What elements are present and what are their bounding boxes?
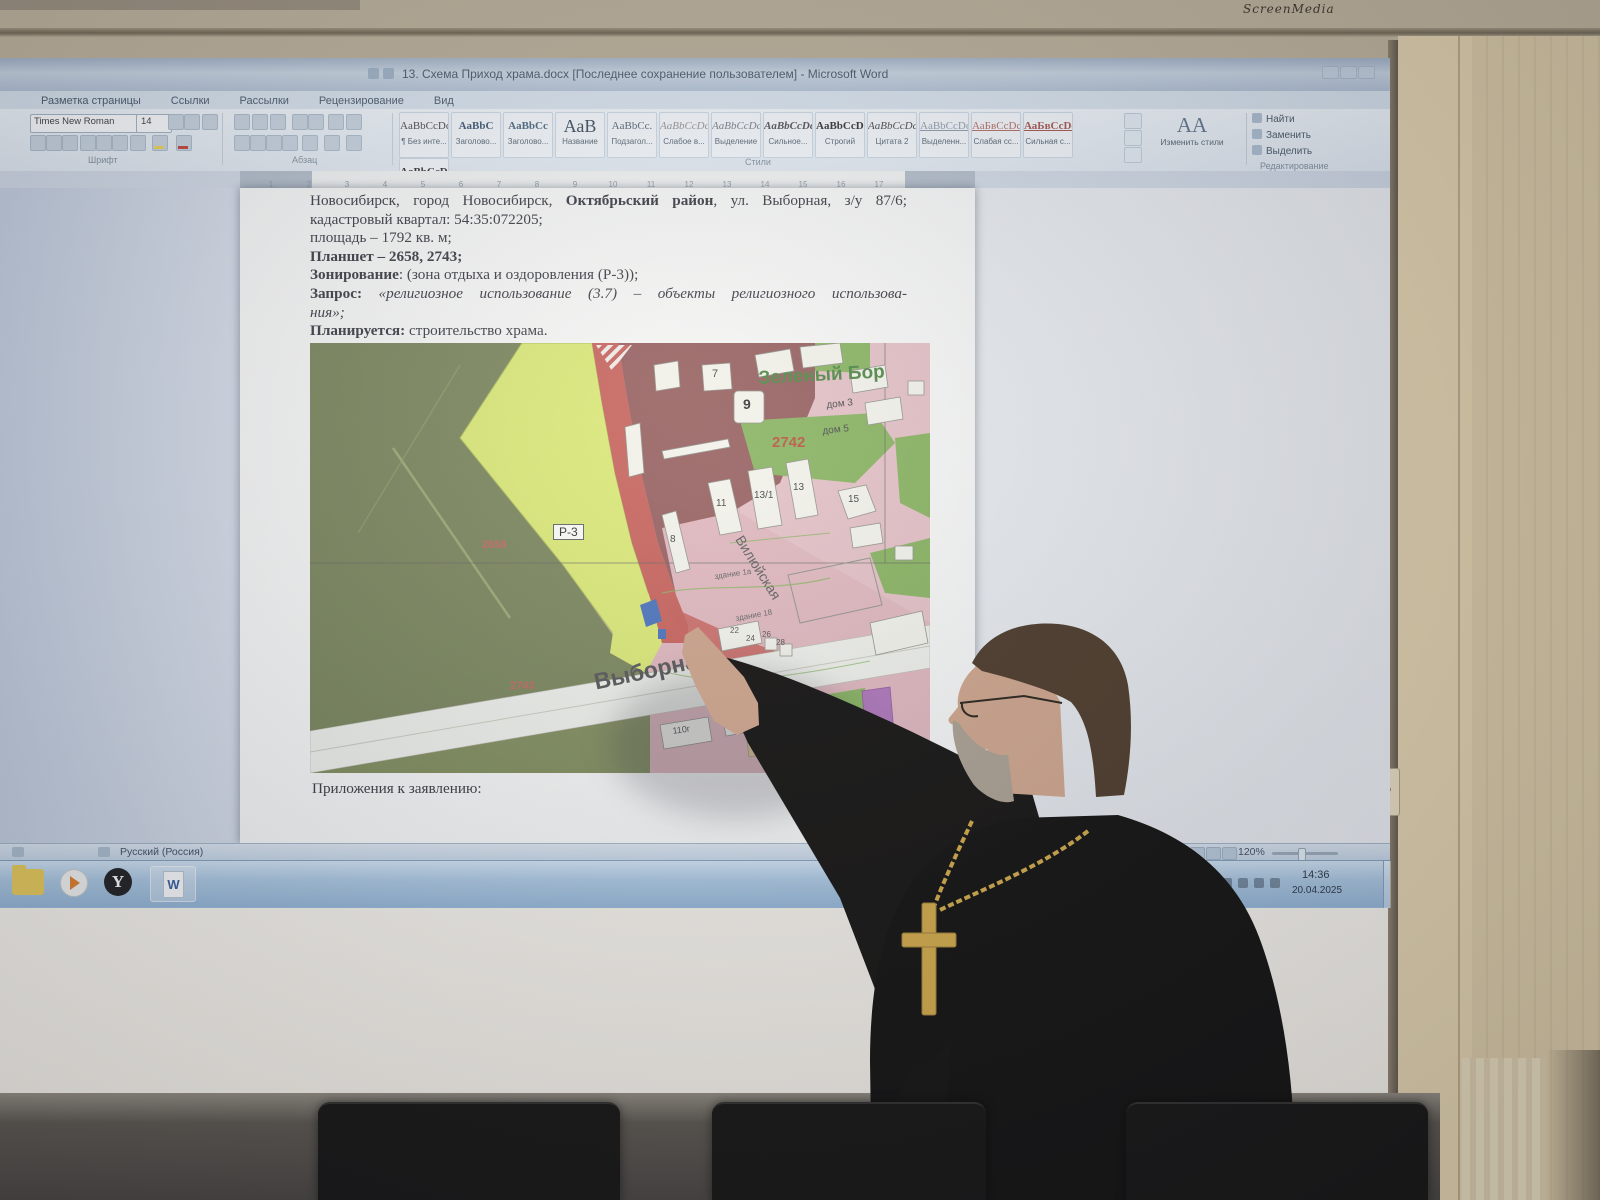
wood-trim	[1462, 1058, 1546, 1200]
corner-shadow	[1546, 1050, 1600, 1200]
style-chip[interactable]: АаБвСсDc Слабая сс...	[971, 112, 1021, 158]
select-label: Выделить	[1266, 146, 1312, 157]
style-label: ¶ Без инте...	[400, 137, 448, 146]
chair-back	[1126, 1102, 1428, 1200]
page-info-icon[interactable]	[12, 847, 24, 857]
map-label: 9	[743, 397, 751, 411]
style-sample: AaBbCcDc	[712, 113, 760, 137]
styles-scroll-down-icon[interactable]	[1124, 130, 1142, 146]
ribbon-tab[interactable]: Рецензирование	[304, 93, 419, 107]
highlight-color	[154, 146, 164, 149]
pilcrow-icon[interactable]	[346, 114, 362, 130]
doc-line: кадастровый квартал: 54:35:072205;	[310, 211, 907, 230]
style-label: Заголово...	[504, 137, 552, 146]
numbering-icon[interactable]	[252, 114, 268, 130]
word-titlebar: 13. Схема Приход храма.docx [Последнее с…	[0, 58, 1390, 91]
style-sample: AaBbCc	[504, 113, 552, 137]
styles-gallery: AaBbCcDc ¶ Без инте... AaBbC Заголово...…	[398, 112, 1120, 160]
editing-group: Найти Заменить Выделить Редактирование	[1252, 113, 1372, 171]
font-name-box[interactable]: Times New Roman	[30, 114, 138, 133]
style-chip[interactable]: АаВ Название	[555, 112, 605, 158]
doc-line: Планируется: строительство храма.	[310, 322, 907, 341]
change-styles-label: Изменить стили	[1146, 138, 1238, 147]
ribbon: Times New Roman 14 Шрифт	[0, 109, 1390, 172]
style-sample: AaBbCcDc	[400, 113, 448, 137]
paragraph-group-label: Абзац	[292, 155, 317, 165]
select-button[interactable]: Выделить	[1252, 145, 1372, 159]
font-color-icon[interactable]	[176, 135, 192, 151]
indent-decrease-icon[interactable]	[292, 114, 308, 130]
style-chip[interactable]: AaBbCcDc Выделение	[711, 112, 761, 158]
map-label: 2743	[510, 681, 534, 692]
superscript-icon[interactable]	[112, 135, 128, 151]
screen-brand-logo: ScreenMedia	[1243, 2, 1335, 16]
justify-icon[interactable]	[282, 135, 298, 151]
style-label: Сильное...	[764, 137, 812, 146]
align-center-icon[interactable]	[250, 135, 266, 151]
ribbon-tab[interactable]: Вид	[419, 93, 469, 107]
style-chip[interactable]: AaBbCc. Подзагол...	[607, 112, 657, 158]
font-size-box[interactable]: 14	[136, 114, 172, 133]
font-color	[178, 146, 188, 149]
priest-head	[949, 623, 1131, 802]
subscript-icon[interactable]	[96, 135, 112, 151]
style-sample: AaBbCcDc	[660, 113, 708, 137]
show-desktop-button[interactable]	[1383, 861, 1391, 908]
map-label: 13/1	[754, 491, 773, 501]
doc-line: Новосибирск, город Новосибирск, Октябрьс…	[310, 192, 907, 211]
style-sample: AaBbCcDc	[868, 113, 916, 137]
replace-button[interactable]: Заменить	[1252, 129, 1372, 143]
word-taskbar-button[interactable]: W	[150, 866, 196, 902]
style-label: Заголово...	[452, 137, 500, 146]
map-label: 8	[670, 535, 676, 545]
screen-top-bezel: ScreenMedia	[0, 0, 1600, 58]
group-divider	[222, 113, 223, 165]
indent-increase-icon[interactable]	[308, 114, 324, 130]
map-label: Р-3	[553, 524, 584, 540]
style-chip[interactable]: АаБвСсDc Сильная с...	[1023, 112, 1073, 158]
ribbon-tab[interactable]: Разметка страницы	[26, 93, 156, 107]
change-styles-button[interactable]: АА Изменить стили	[1146, 112, 1238, 170]
styles-scroll	[1124, 113, 1141, 164]
grow-font-icon[interactable]	[168, 114, 184, 130]
style-label: Название	[556, 137, 604, 146]
align-right-icon[interactable]	[266, 135, 282, 151]
undo-icon[interactable]	[383, 68, 394, 79]
style-chip[interactable]: AaBbCcDc Строгий	[815, 112, 865, 158]
styles-group-label: Стили	[745, 157, 771, 167]
doc-line: Планшет – 2658, 2743;	[310, 248, 907, 267]
ruler[interactable]: 1234567891011121314151617	[0, 171, 1390, 188]
bold-icon[interactable]	[30, 135, 46, 151]
chair-back	[318, 1102, 620, 1200]
map-label: 2742	[772, 435, 805, 450]
change-styles-icon: АА	[1146, 112, 1238, 138]
editing-group-label: Редактирование	[1260, 161, 1372, 171]
select-icon	[1252, 145, 1262, 155]
styles-more-icon[interactable]	[1124, 147, 1142, 163]
change-case-icon[interactable]	[130, 135, 146, 151]
style-sample: АаВ	[556, 113, 604, 137]
style-chip[interactable]: AaBbCcDc Выделенн...	[919, 112, 969, 158]
media-player-icon[interactable]	[60, 869, 88, 897]
font-group-label: Шрифт	[88, 155, 118, 165]
style-label: Цитата 2	[868, 137, 916, 146]
bullets-icon[interactable]	[234, 114, 250, 130]
style-sample: AaBbC	[452, 113, 500, 137]
clock-time[interactable]: 14:36	[1302, 869, 1330, 881]
map-label: 13	[793, 483, 804, 493]
line-spacing-icon[interactable]	[302, 135, 318, 151]
doc-line: Зонирование: (зона отдыха и оздоровления…	[310, 266, 907, 285]
find-label: Найти	[1266, 114, 1295, 125]
minimize-button[interactable]	[1322, 66, 1339, 79]
photo-scene: ScreenMedia 13. Схема Приход храма.docx …	[0, 0, 1600, 1200]
style-sample: АаБвСсDc	[1024, 113, 1072, 137]
doc-line: площадь – 1792 кв. м;	[310, 229, 907, 248]
attachments-line: Приложения к заявлению:	[312, 780, 482, 798]
replace-icon	[1252, 129, 1262, 139]
doc-line: Запрос: «религиозное использование (3.7)…	[310, 285, 907, 304]
group-divider	[1246, 113, 1247, 165]
map-label: 15	[848, 495, 859, 505]
map-label: 11	[716, 499, 726, 509]
style-chip[interactable]: AaBbC Заголово...	[451, 112, 501, 158]
ribbon-tabs: Разметка страницыСсылкиРассылкиРецензиро…	[0, 91, 1390, 109]
style-label: Выделение	[712, 137, 760, 146]
replace-label: Заменить	[1266, 130, 1311, 141]
language-indicator[interactable]: Русский (Россия)	[120, 846, 203, 858]
ribbon-tabs-row: Разметка страницыСсылкиРассылкиРецензиро…	[0, 91, 1390, 110]
save-icon[interactable]	[368, 68, 379, 79]
wall-panel-column	[1472, 36, 1600, 1200]
underline-icon[interactable]	[62, 135, 78, 151]
style-label: Слабое в...	[660, 137, 708, 146]
clear-format-icon[interactable]	[202, 114, 218, 130]
multilevel-icon[interactable]	[270, 114, 286, 130]
find-button[interactable]: Найти	[1252, 113, 1372, 127]
highlight-icon[interactable]	[152, 135, 168, 151]
bezel-groove	[0, 28, 1600, 37]
style-label: Выделенн...	[920, 137, 968, 146]
style-label: Слабая сс...	[972, 137, 1020, 146]
style-label: Подзагол...	[608, 137, 656, 146]
wall-seam	[1458, 36, 1460, 1200]
italic-icon[interactable]	[46, 135, 62, 151]
style-sample: AaBbCcDc	[920, 113, 968, 137]
folder-icon[interactable]	[12, 869, 44, 895]
group-divider	[392, 113, 393, 165]
style-chip[interactable]: AaBbCcDc ¶ Без инте...	[399, 112, 449, 158]
sort-icon[interactable]	[328, 114, 344, 130]
shading-icon[interactable]	[324, 135, 340, 151]
map-label: 7	[712, 369, 718, 380]
styles-scroll-up-icon[interactable]	[1124, 113, 1142, 129]
style-sample: AaBbCc.	[608, 113, 656, 137]
align-left-icon[interactable]	[234, 135, 250, 151]
doc-line: ния»;	[310, 304, 907, 323]
word-document-icon: W	[163, 871, 184, 898]
style-chip[interactable]: AaBbCcDc Сильное...	[763, 112, 813, 158]
style-chip[interactable]: AaBbCcDc Цитата 2	[867, 112, 917, 158]
window-title: 13. Схема Приход храма.docx [Последнее с…	[402, 67, 888, 81]
yandex-browser-icon[interactable]: Y	[104, 868, 132, 896]
style-sample: AaBbCcDc	[816, 113, 864, 137]
maximize-button[interactable]	[1340, 66, 1357, 79]
spellcheck-icon[interactable]	[98, 847, 110, 857]
close-button[interactable]	[1358, 66, 1375, 79]
ribbon-tab[interactable]: Ссылки	[156, 93, 225, 107]
style-chip[interactable]: AaBbCcDc Слабое в...	[659, 112, 709, 158]
ribbon-tab[interactable]: Рассылки	[225, 93, 304, 107]
style-sample: АаБвСсDc	[972, 113, 1020, 137]
style-label: Сильная с...	[1024, 137, 1072, 146]
document-text: Новосибирск, город Новосибирск, Октябрьс…	[310, 192, 907, 341]
style-sample: AaBbCcDc	[764, 113, 812, 137]
borders-icon[interactable]	[346, 135, 362, 151]
shrink-font-icon[interactable]	[184, 114, 200, 130]
strikethrough-icon[interactable]	[80, 135, 96, 151]
map-label: 2658	[482, 540, 506, 551]
chair-back	[712, 1102, 986, 1200]
find-icon	[1252, 113, 1262, 123]
style-chip[interactable]: AaBbCc Заголово...	[503, 112, 553, 158]
bezel-edge	[0, 0, 360, 10]
style-label: Строгий	[816, 137, 864, 146]
